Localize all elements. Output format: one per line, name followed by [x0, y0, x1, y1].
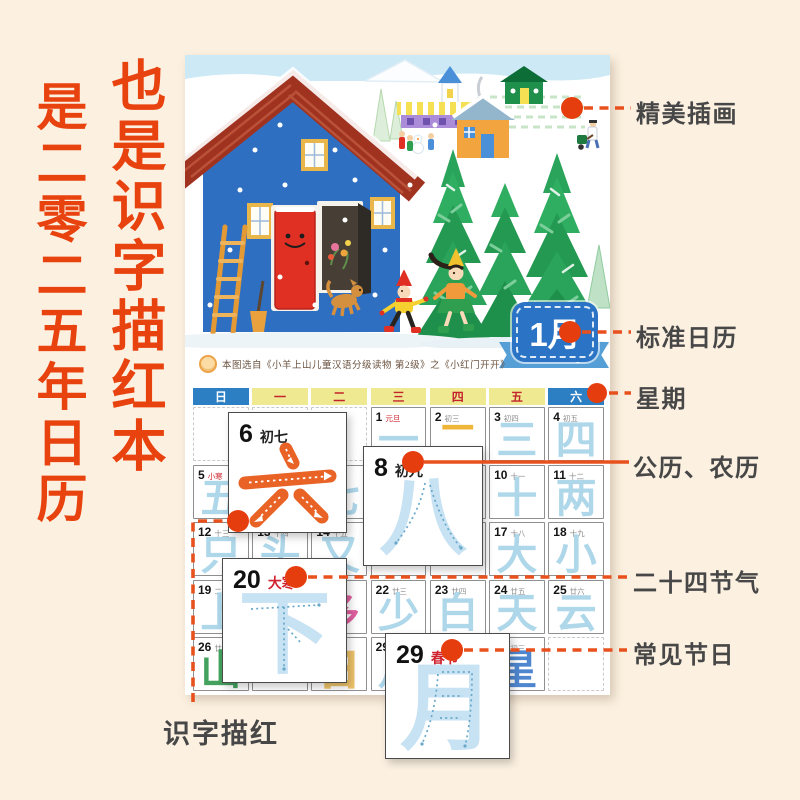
calendar-cell-10: 10十一十 — [489, 465, 545, 519]
headline-left-column: 是二零二五年日历 — [20, 80, 94, 528]
trace-char: 三 — [490, 422, 544, 460]
calendar-cell-18: 18十九小 — [548, 522, 604, 576]
callout-day-20: 20 大寒 下 — [222, 558, 347, 683]
annotation-character-tracing: 识字描红 — [163, 712, 279, 751]
calendar-cell-23: 23廿四白 — [430, 580, 486, 634]
calendar-cell-25: 25廿六云 — [548, 580, 604, 634]
stroke-order-char-six — [229, 413, 346, 532]
poster: 也是识字描红本 是二零二五年日历 — [0, 0, 800, 800]
calendar-cell-4: 4初五四 — [548, 407, 604, 461]
trace-char: 四 — [549, 422, 603, 460]
weekday-五: 五 — [489, 388, 545, 405]
annotation-standard-calendar: 标准日历 — [636, 318, 738, 353]
weekday-六: 六 — [548, 388, 604, 405]
trace-char: 云 — [549, 595, 603, 633]
trace-char: 白 — [431, 595, 485, 633]
trace-char: 少 — [372, 595, 426, 633]
weekday-二: 二 — [311, 388, 367, 405]
callout-day-29: 29 春节 月 — [385, 633, 510, 759]
calendar-cell-3: 3初四三 — [489, 407, 545, 461]
sheep-mascot-icon — [199, 355, 217, 373]
source-note-text: 本图选自《小羊上山儿童汉语分级读物 第2级》之《小红门开开》 — [222, 357, 510, 371]
source-note-row: 本图选自《小羊上山儿童汉语分级读物 第2级》之《小红门开开》 — [199, 355, 510, 373]
trace-char: 大 — [490, 537, 544, 575]
headline-right-column: 也是识字描红本 — [94, 57, 174, 477]
trace-char: 天 — [490, 595, 544, 633]
empty-cell — [548, 637, 604, 691]
calendar-cell-24: 24廿五天 — [489, 580, 545, 634]
callout-day-8: 8 初九 八 — [363, 446, 483, 566]
annotation-solar-lunar-dates: 公历、农历 — [633, 448, 761, 483]
annotation-week: 星期 — [636, 379, 687, 414]
weekday-header: 日一二三四五六 — [193, 388, 604, 405]
trace-char: 八 — [364, 477, 482, 561]
trace-char: 月 — [386, 664, 509, 754]
callout-day-6: 6 初七 — [228, 412, 347, 533]
trace-char: 十 — [490, 480, 544, 518]
weekday-四: 四 — [430, 388, 486, 405]
trace-char: 小 — [549, 537, 603, 575]
calendar-cell-22: 22廿三少 — [371, 580, 427, 634]
calendar-cell-11: 11十二两 — [548, 465, 604, 519]
trace-char: 下 — [223, 591, 346, 678]
weekday-三: 三 — [371, 388, 427, 405]
weekday-日: 日 — [193, 388, 249, 405]
trace-char: 两 — [549, 480, 603, 518]
month-badge: 1月 — [512, 302, 598, 362]
annotation-illustration: 精美插画 — [636, 94, 738, 129]
annotation-festivals: 常见节日 — [633, 635, 735, 670]
weekday-一: 一 — [252, 388, 308, 405]
annotation-solar-terms: 二十四节气 — [633, 563, 761, 598]
badge-month-label: 1月 — [512, 302, 598, 362]
calendar-cell-17: 17十八大 — [489, 522, 545, 576]
